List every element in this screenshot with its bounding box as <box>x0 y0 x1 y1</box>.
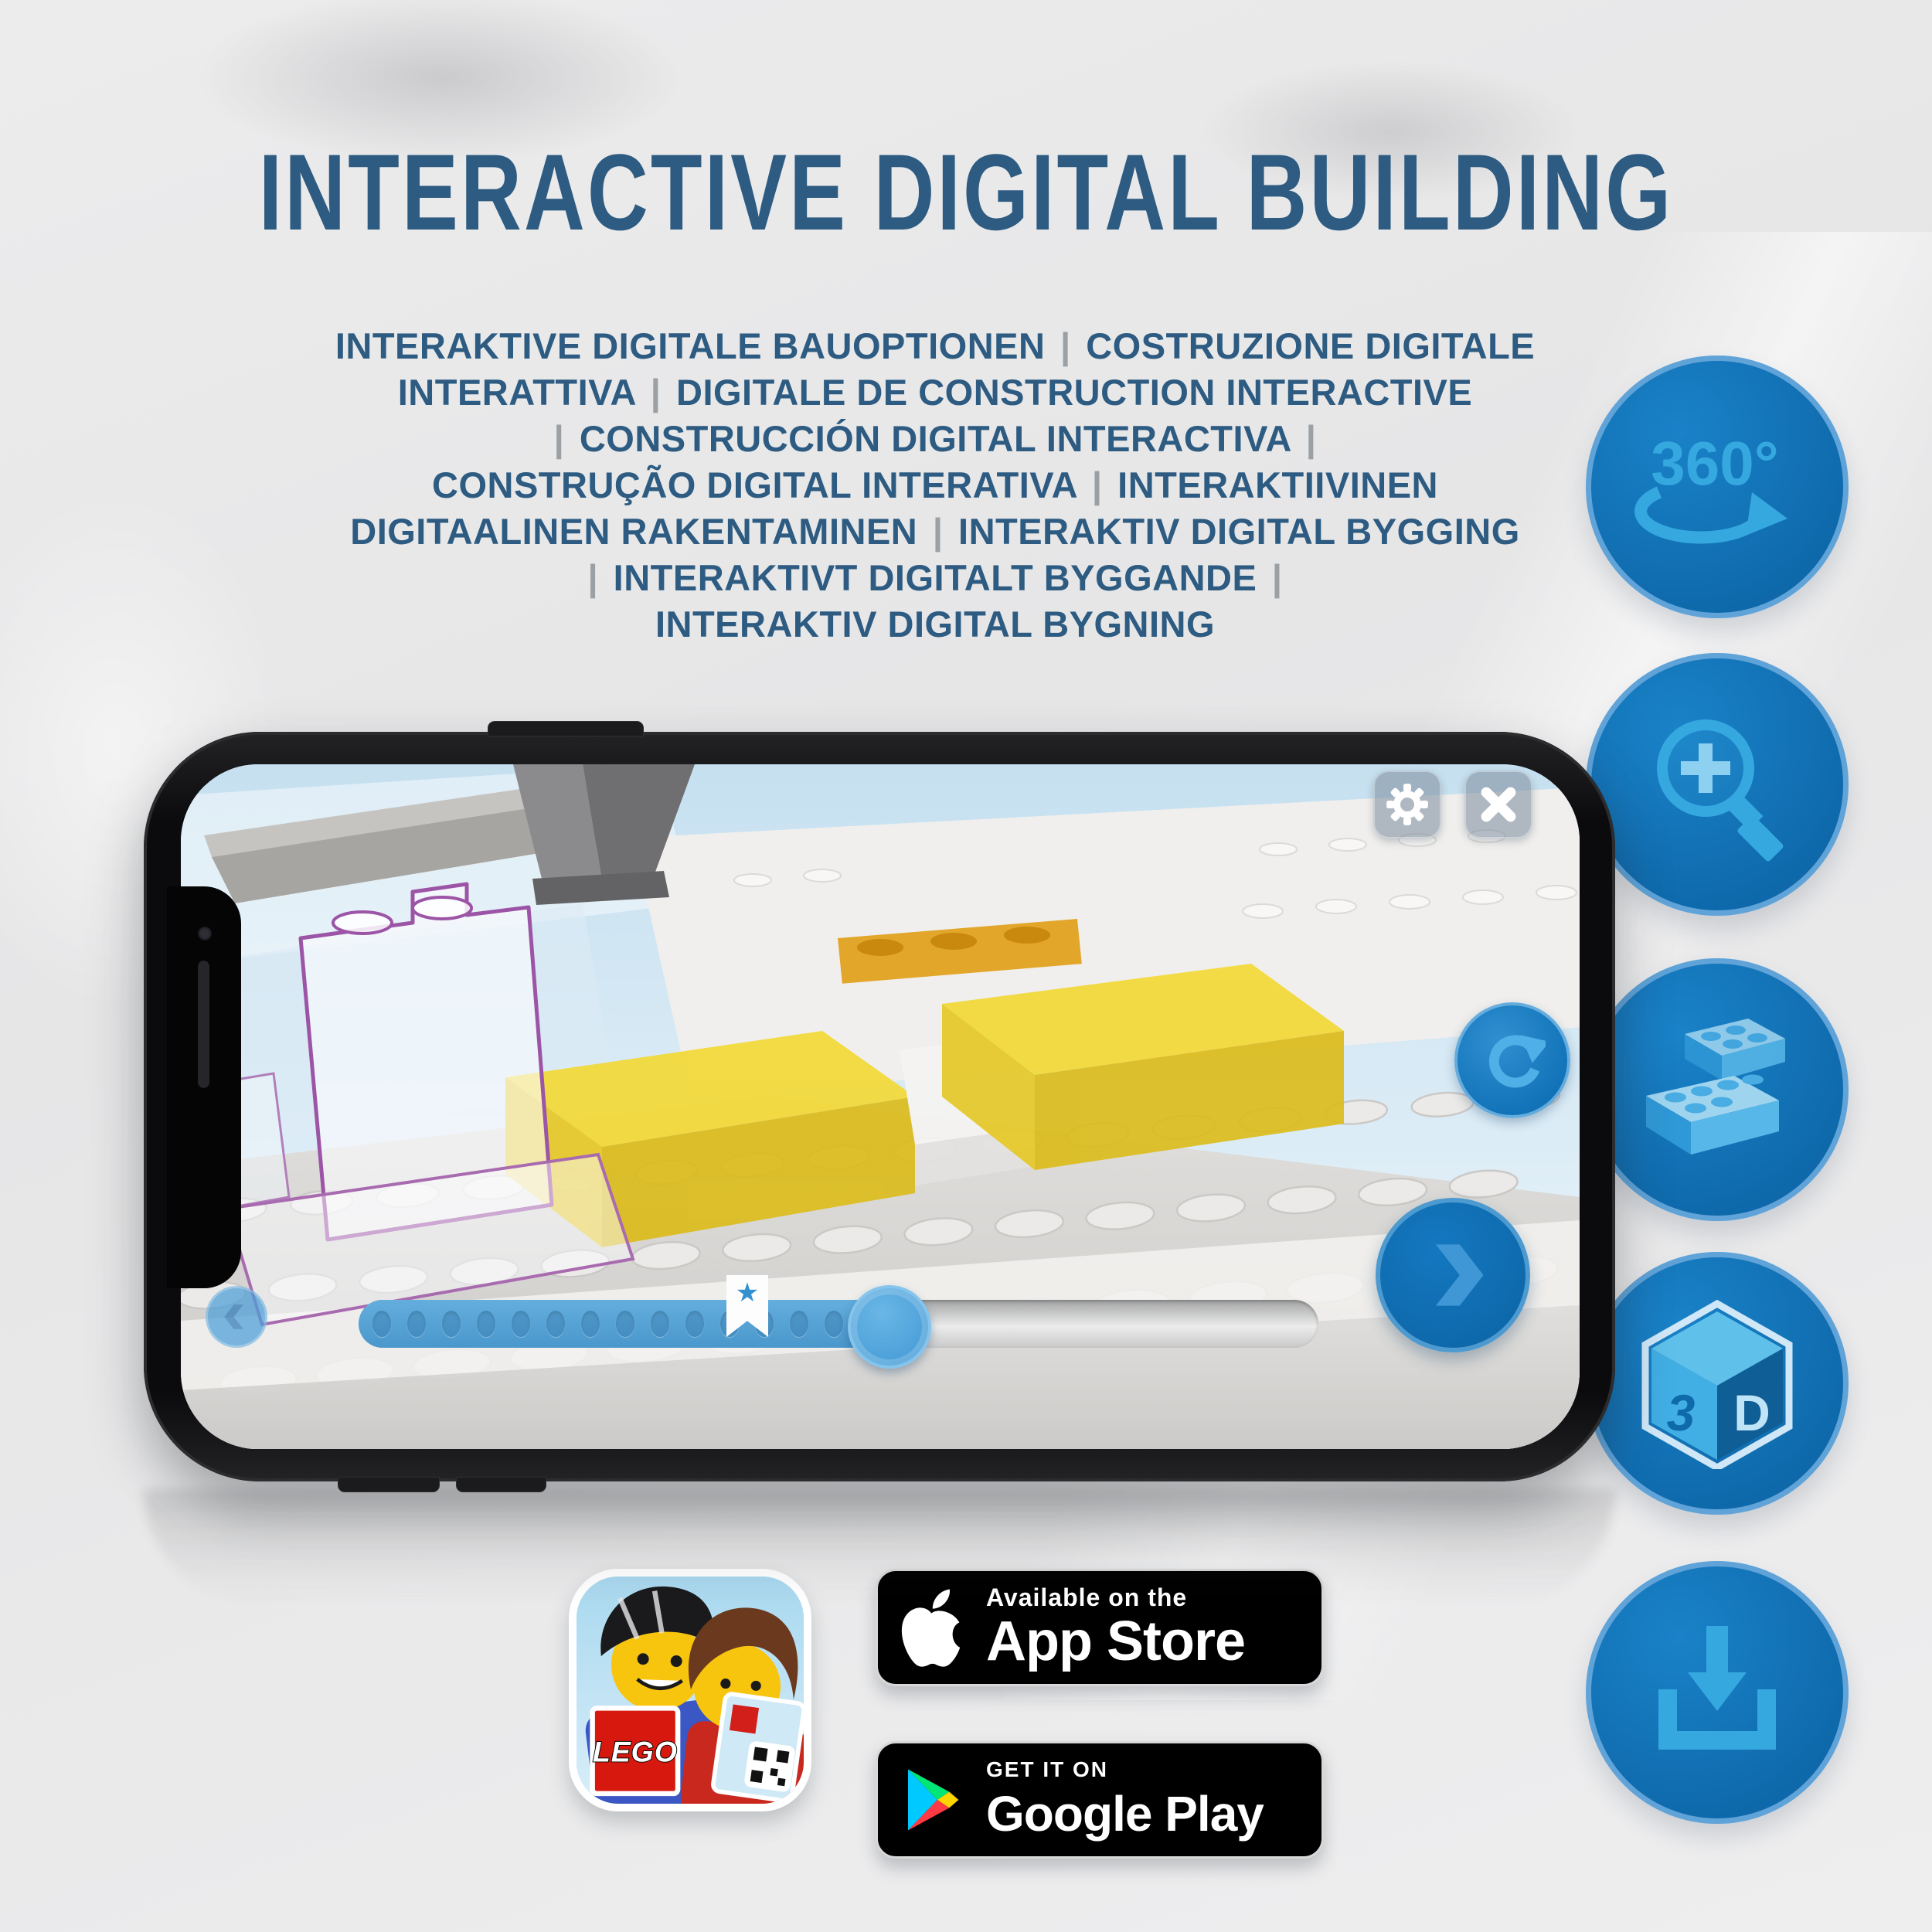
download-icon <box>1586 1561 1849 1824</box>
lego-logo-text: LEGO <box>593 1736 678 1768</box>
phone-notch <box>167 886 241 1288</box>
poster: INTERACTIVE DIGITAL BUILDING INTERAKTIVE… <box>0 0 1932 1932</box>
google-play-name: Google Play <box>986 1784 1264 1844</box>
progress-dot <box>372 1311 391 1337</box>
close-icon <box>1477 783 1520 826</box>
build-progress-slider[interactable]: ★ <box>359 1300 1318 1348</box>
close-button[interactable] <box>1464 770 1532 838</box>
subtitle-line: INTERATTIVA | DIGITALE DE CONSTRUCTION I… <box>236 369 1634 416</box>
subtitle-line: CONSTRUÇÃO DIGITAL INTERATIVA | INTERAKT… <box>236 462 1634 509</box>
front-camera <box>198 927 212 940</box>
gear-icon <box>1386 783 1429 826</box>
progress-dot <box>512 1311 530 1337</box>
phone-mockup: ★ <box>144 732 1615 1481</box>
progress-dot <box>651 1311 669 1337</box>
app-store-name: App Store <box>986 1611 1245 1672</box>
app-screen: ★ <box>181 764 1580 1449</box>
progress-dot <box>825 1311 843 1337</box>
phone-reflection <box>144 1489 1615 1605</box>
progress-dot <box>442 1311 461 1337</box>
chevron-right-icon <box>1410 1233 1495 1318</box>
subtitle-line: | CONSTRUCCIÓN DIGITAL INTERACTIVA | <box>236 416 1634 462</box>
settings-button[interactable] <box>1373 770 1441 838</box>
subtitle-block: INTERAKTIVE DIGITALE BAUOPTIONEN | COSTR… <box>236 323 1634 648</box>
phone-volume-down-button <box>456 1477 546 1492</box>
google-play-badge[interactable]: GET IT ON Google Play <box>876 1741 1324 1859</box>
cube-face-3: 3 <box>1667 1384 1696 1441</box>
rotate-model-button[interactable] <box>1454 1002 1570 1118</box>
cube-face-d: D <box>1733 1384 1770 1441</box>
progress-dot <box>477 1311 495 1337</box>
previous-step-button[interactable] <box>206 1286 267 1348</box>
progress-dot <box>546 1311 565 1337</box>
page-title: INTERACTIVE DIGITAL BUILDING <box>213 130 1719 255</box>
lego-logo: LEGO <box>593 1708 678 1793</box>
subtitle-line: INTERAKTIVE DIGITALE BAUOPTIONEN | COSTR… <box>236 323 1634 369</box>
subtitle-line: INTERAKTIV DIGITAL BYGNING <box>236 601 1634 648</box>
progress-dot <box>616 1311 634 1337</box>
next-step-button[interactable] <box>1376 1198 1530 1352</box>
rotate-360-label: 360° <box>1651 429 1778 498</box>
progress-dot <box>790 1311 808 1337</box>
google-play-tagline: GET IT ON <box>986 1756 1264 1784</box>
zoom-in-icon <box>1586 653 1849 916</box>
google-play-icon <box>878 1763 986 1837</box>
phone-power-button <box>488 721 644 736</box>
progress-dot <box>581 1311 600 1337</box>
rotate-360-icon: 360° <box>1586 355 1849 618</box>
3d-cube-icon: 3 D <box>1586 1252 1849 1515</box>
refresh-icon <box>1479 1027 1546 1094</box>
earpiece-speaker <box>198 961 209 1088</box>
subtitle-line: | INTERAKTIVT DIGITALT BYGGANDE | <box>236 555 1634 601</box>
chevron-left-icon <box>219 1300 253 1334</box>
phone-volume-up-button <box>338 1477 440 1492</box>
progress-fill <box>359 1300 907 1348</box>
subtitle-line: DIGITAALINEN RAKENTAMINEN | INTERAKTIV D… <box>236 509 1634 555</box>
slider-knob[interactable] <box>848 1285 931 1369</box>
progress-dot <box>685 1311 704 1337</box>
lego-app-icon: LEGO <box>569 1569 811 1811</box>
stacked-bricks-icon <box>1586 958 1849 1221</box>
progress-dot <box>407 1311 426 1337</box>
qr-card <box>713 1693 804 1801</box>
